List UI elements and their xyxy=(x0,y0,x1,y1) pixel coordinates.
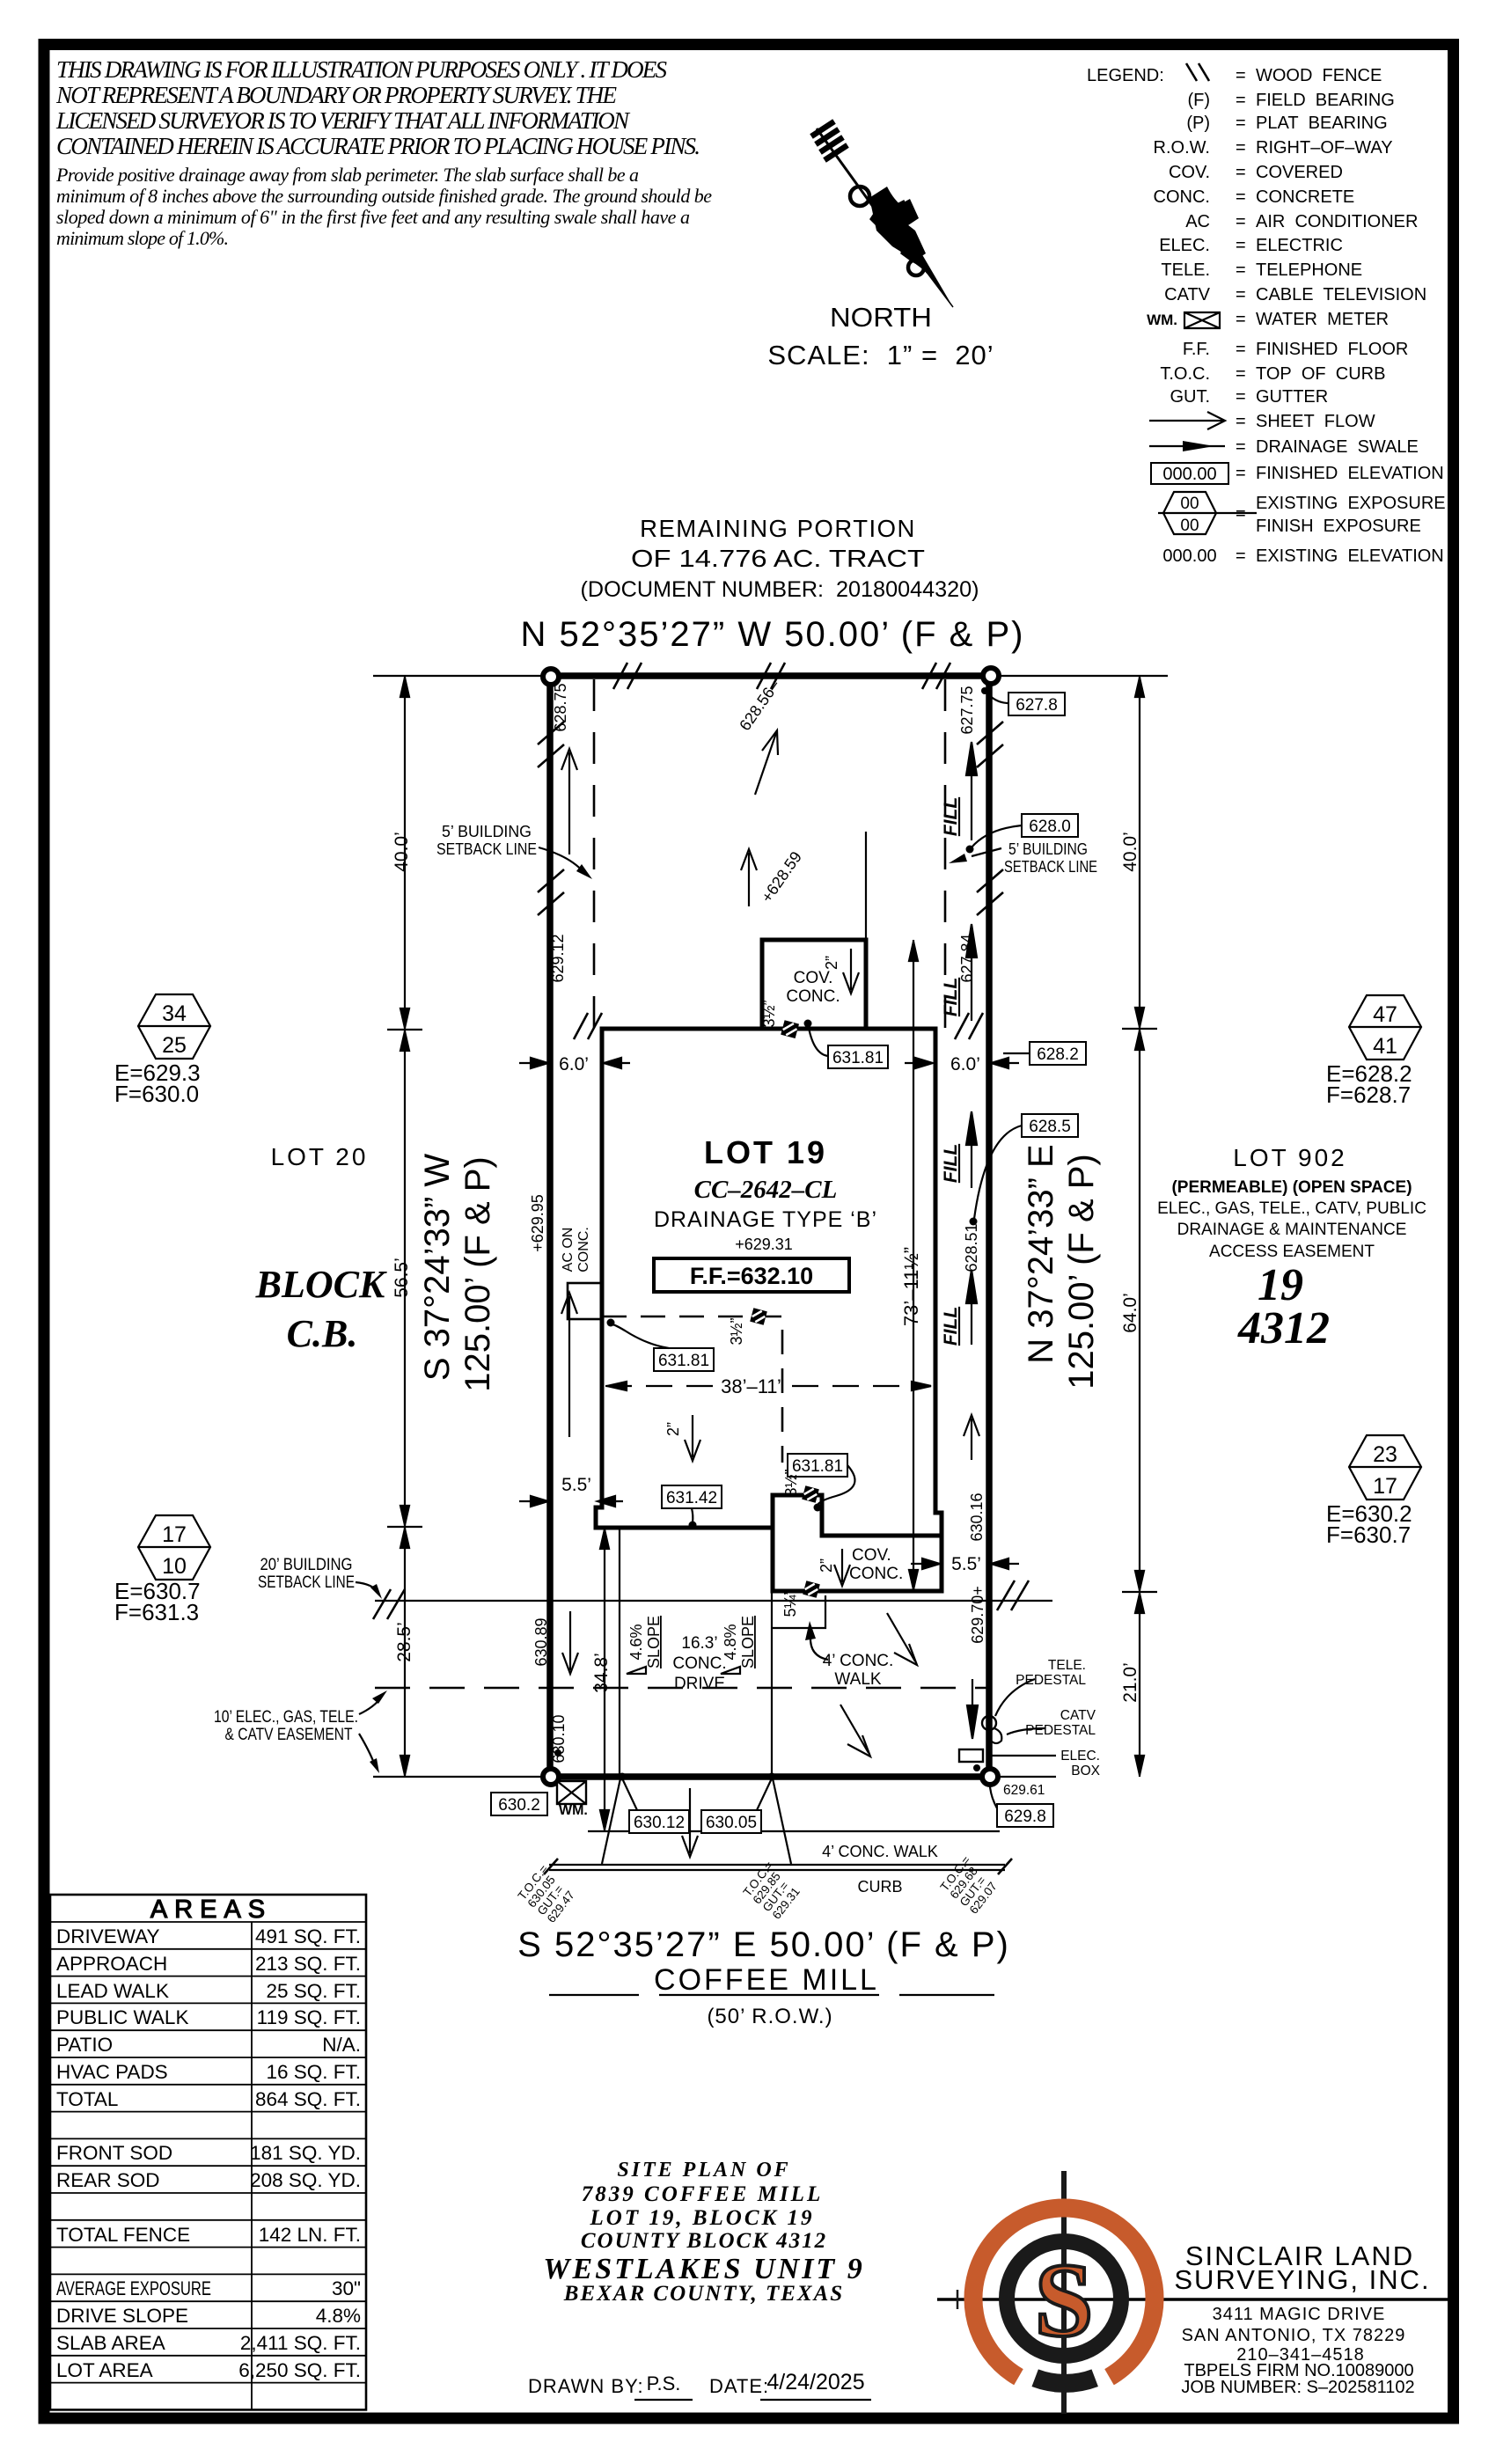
svg-text:R.O.W.: R.O.W. xyxy=(1154,138,1210,158)
svg-text:628.2: 628.2 xyxy=(1037,1045,1079,1064)
svg-text:LOT 19, BLOCK 19: LOT 19, BLOCK 19 xyxy=(590,2206,815,2230)
svg-text:THIS DRAWING IS FOR ILLUSTRATI: THIS DRAWING IS FOR ILLUSTRATION PURPOSE… xyxy=(56,56,668,83)
svg-text:=: = xyxy=(1236,546,1246,566)
svg-text:WM.: WM. xyxy=(559,1803,588,1818)
svg-text:208 SQ. YD.: 208 SQ. YD. xyxy=(250,2169,361,2191)
svg-text:EXISTING EXPOSURE: EXISTING EXPOSURE xyxy=(1256,494,1446,513)
svg-text:5’ BUILDING: 5’ BUILDING xyxy=(442,823,532,840)
svg-text:DRIVE SLOPE: DRIVE SLOPE xyxy=(56,2305,188,2327)
svg-text:DRAWN BY:: DRAWN BY: xyxy=(528,2375,644,2397)
svg-text:JOB NUMBER: S–202581102: JOB NUMBER: S–202581102 xyxy=(1181,2378,1414,2397)
svg-text:629.70+: 629.70+ xyxy=(969,1586,986,1644)
svg-text:minimum slope of 1.0%.: minimum slope of 1.0%. xyxy=(56,227,229,249)
svg-text:PEDESTAL: PEDESTAL xyxy=(1016,1673,1086,1688)
svg-text:PLAT BEARING: PLAT BEARING xyxy=(1256,114,1388,133)
svg-text:FILL: FILL xyxy=(941,797,961,836)
svg-text:TELE.: TELE. xyxy=(1048,1658,1086,1673)
svg-text:SETBACK LINE: SETBACK LINE xyxy=(436,840,537,858)
svg-text:630.16: 630.16 xyxy=(968,1492,986,1541)
svg-text:WALK: WALK xyxy=(834,1670,881,1689)
svg-text:00: 00 xyxy=(1180,495,1199,513)
svg-text:4/24/2025: 4/24/2025 xyxy=(766,2370,864,2394)
svg-text:628.75: 628.75 xyxy=(552,683,569,731)
svg-text:SETBACK LINE: SETBACK LINE xyxy=(258,1573,355,1592)
svg-text:(50’ R.O.W.): (50’ R.O.W.) xyxy=(707,2005,832,2028)
svg-text:=: = xyxy=(1236,163,1246,182)
svg-text:SLOPE: SLOPE xyxy=(645,1616,663,1668)
svg-text:CONC.: CONC. xyxy=(672,1654,726,1673)
svg-text:SETBACK LINE: SETBACK LINE xyxy=(1004,858,1097,876)
svg-text:PUBLIC WALK: PUBLIC WALK xyxy=(56,2006,188,2028)
svg-text:PATIO: PATIO xyxy=(56,2034,113,2056)
svg-text:5.5’: 5.5’ xyxy=(951,1554,981,1574)
svg-text:=: = xyxy=(1236,260,1246,280)
svg-text:BEXAR COUNTY, TEXAS: BEXAR COUNTY, TEXAS xyxy=(563,2282,844,2306)
svg-text:APPROACH: APPROACH xyxy=(56,1953,167,1975)
svg-text:6,250 SQ. FT.: 6,250 SQ. FT. xyxy=(238,2359,361,2381)
svg-text:LOT 20: LOT 20 xyxy=(271,1143,369,1170)
svg-text:10: 10 xyxy=(162,1554,187,1579)
svg-text:=: = xyxy=(1236,285,1246,304)
svg-text:73’–11½”: 73’–11½” xyxy=(900,1247,922,1326)
svg-text:34: 34 xyxy=(162,1001,187,1026)
svg-text:=: = xyxy=(1236,138,1246,158)
svg-text:16 SQ. FT.: 16 SQ. FT. xyxy=(266,2061,361,2083)
svg-text:SHEET FLOW: SHEET FLOW xyxy=(1256,412,1375,431)
svg-text:628.5: 628.5 xyxy=(1029,1118,1071,1136)
svg-text:628.51: 628.51 xyxy=(963,1223,980,1272)
svg-text:CC–2642–CL: CC–2642–CL xyxy=(694,1176,838,1204)
svg-text:2”: 2” xyxy=(823,956,840,970)
svg-text:631.81: 631.81 xyxy=(832,1049,884,1067)
svg-text:627.75: 627.75 xyxy=(958,686,976,734)
svg-text:5.5’: 5.5’ xyxy=(561,1475,591,1495)
svg-text:T.O.C.: T.O.C. xyxy=(1160,364,1210,384)
svg-text:629.8: 629.8 xyxy=(1004,1808,1046,1826)
svg-text:28.5’: 28.5’ xyxy=(394,1622,414,1662)
svg-text:BLOCK: BLOCK xyxy=(255,1263,387,1306)
svg-text:S 52°35’27” E 50.00’ (F & P): S 52°35’27” E 50.00’ (F & P) xyxy=(517,1925,1010,1964)
svg-text:HVAC PADS: HVAC PADS xyxy=(56,2061,168,2083)
svg-text:FINISH EXPOSURE: FINISH EXPOSURE xyxy=(1256,517,1421,536)
svg-text:COUNTY BLOCK 4312: COUNTY BLOCK 4312 xyxy=(581,2229,827,2253)
svg-text:TOP OF CURB: TOP OF CURB xyxy=(1256,364,1385,384)
svg-text:ELEC.: ELEC. xyxy=(1060,1749,1100,1764)
svg-text:PEDESTAL: PEDESTAL xyxy=(1025,1723,1096,1738)
svg-text:AIR CONDITIONER: AIR CONDITIONER xyxy=(1256,212,1418,231)
svg-text:N/A.: N/A. xyxy=(322,2034,361,2056)
svg-text:38’–11”: 38’–11” xyxy=(721,1375,784,1397)
svg-text:125.00’ (F & P): 125.00’ (F & P) xyxy=(458,1156,497,1392)
svg-text:4’ CONC. WALK: 4’ CONC. WALK xyxy=(822,1843,938,1860)
svg-text:SLAB AREA: SLAB AREA xyxy=(56,2332,165,2354)
svg-text:P.S.: P.S. xyxy=(647,2372,681,2394)
svg-text:ELECTRIC: ELECTRIC xyxy=(1256,236,1343,255)
svg-text:DRIVEWAY: DRIVEWAY xyxy=(56,1925,160,1947)
svg-text:RIGHT–OF–WAY: RIGHT–OF–WAY xyxy=(1256,138,1393,158)
svg-text:41: 41 xyxy=(1373,1034,1397,1059)
svg-text:CATV: CATV xyxy=(1164,285,1211,304)
svg-text:AVERAGE EXPOSURE: AVERAGE EXPOSURE xyxy=(56,2277,211,2299)
svg-text:REAR SOD: REAR SOD xyxy=(56,2169,160,2191)
svg-text:(P): (P) xyxy=(1186,114,1210,133)
svg-text:3½”: 3½” xyxy=(728,1317,745,1345)
svg-text:5¼”: 5¼” xyxy=(781,1589,799,1617)
svg-text:COV.: COV. xyxy=(852,1546,891,1565)
svg-text:GUT.: GUT. xyxy=(1170,387,1210,407)
svg-text:F=630.7: F=630.7 xyxy=(1326,1522,1411,1548)
svg-text:CONC.: CONC. xyxy=(849,1565,903,1583)
svg-text:20’ BUILDING: 20’ BUILDING xyxy=(260,1556,353,1574)
svg-text:ELEC.: ELEC. xyxy=(1159,236,1210,255)
svg-text:AC ON: AC ON xyxy=(561,1228,576,1272)
svg-text:64.0’: 64.0’ xyxy=(1120,1293,1140,1333)
svg-text:+629.95: +629.95 xyxy=(529,1194,546,1252)
svg-text:2”: 2” xyxy=(664,1422,682,1436)
svg-text:F.F.=632.10: F.F.=632.10 xyxy=(690,1263,813,1289)
svg-text:SCALE: 1” = 20’: SCALE: 1” = 20’ xyxy=(767,340,994,370)
svg-text:630.05: 630.05 xyxy=(706,1814,757,1832)
svg-text:DRIVE: DRIVE xyxy=(674,1675,725,1693)
svg-text:629.12: 629.12 xyxy=(549,934,567,982)
svg-text:16.3’: 16.3’ xyxy=(681,1634,717,1653)
svg-text:4’ CONC.: 4’ CONC. xyxy=(823,1652,894,1670)
svg-text:FINISHED ELEVATION: FINISHED ELEVATION xyxy=(1256,464,1444,483)
svg-text:CONC.: CONC. xyxy=(576,1227,591,1272)
svg-text:47: 47 xyxy=(1373,1002,1397,1027)
svg-text:25: 25 xyxy=(162,1033,187,1058)
svg-text:119 SQ. FT.: 119 SQ. FT. xyxy=(257,2006,361,2028)
svg-text:CONC.: CONC. xyxy=(1154,187,1210,207)
svg-text:BOX: BOX xyxy=(1071,1764,1100,1778)
svg-text:630.89: 630.89 xyxy=(532,1617,550,1666)
svg-text:34.8’: 34.8’ xyxy=(591,1653,612,1693)
svg-text:=: = xyxy=(1236,412,1246,431)
svg-text:629.61: 629.61 xyxy=(1003,1783,1045,1798)
svg-text:SITE PLAN OF: SITE PLAN OF xyxy=(617,2159,790,2182)
svg-text:CABLE TELEVISION: CABLE TELEVISION xyxy=(1256,285,1426,304)
svg-text:LICENSED SURVEYOR IS TO VERIFY: LICENSED SURVEYOR IS TO VERIFY THAT ALL … xyxy=(55,107,631,134)
svg-text:(DOCUMENT NUMBER: 20180044320: (DOCUMENT NUMBER: 20180044320) xyxy=(581,577,979,602)
svg-text:=: = xyxy=(1236,437,1246,457)
svg-text:EXISTING ELEVATION: EXISTING ELEVATION xyxy=(1256,546,1444,566)
svg-text:DRAINAGE TYPE ‘B’: DRAINAGE TYPE ‘B’ xyxy=(654,1207,877,1232)
svg-text:N 37°24’33” E: N 37°24’33” E xyxy=(1022,1144,1060,1363)
svg-text:=: = xyxy=(1236,91,1246,110)
svg-text:142 LN. FT.: 142 LN. FT. xyxy=(259,2224,361,2246)
svg-text:F=631.3: F=631.3 xyxy=(114,1599,199,1625)
svg-text:SAN ANTONIO, TX 78229: SAN ANTONIO, TX 78229 xyxy=(1182,2326,1406,2345)
svg-text:CONCRETE: CONCRETE xyxy=(1256,187,1354,207)
svg-text:00: 00 xyxy=(1180,517,1199,535)
svg-text:COV.: COV. xyxy=(1169,163,1210,182)
svg-text:sloped down a minimum of 6" in: sloped down a minimum of 6" in the first… xyxy=(56,206,690,228)
svg-text:TOTAL FENCE: TOTAL FENCE xyxy=(56,2224,190,2246)
svg-text:40.0’: 40.0’ xyxy=(392,832,412,872)
svg-text:FILL: FILL xyxy=(941,1307,961,1346)
svg-text:=: = xyxy=(1236,114,1246,133)
svg-text:17: 17 xyxy=(162,1522,187,1547)
svg-text:=: = xyxy=(1236,387,1246,407)
svg-text:COV.: COV. xyxy=(794,969,833,987)
svg-text:DRAINAGE SWALE: DRAINAGE SWALE xyxy=(1256,437,1419,457)
svg-text:30": 30" xyxy=(332,2277,361,2299)
svg-text:AC: AC xyxy=(1185,212,1210,231)
svg-text:10’ ELEC., GAS, TELE.: 10’ ELEC., GAS, TELE. xyxy=(214,1708,358,1727)
svg-text:WATER METER: WATER METER xyxy=(1256,310,1389,329)
svg-text:TOTAL: TOTAL xyxy=(56,2088,118,2110)
svg-text:(PERMEABLE) (OPEN SPACE): (PERMEABLE) (OPEN SPACE) xyxy=(1171,1178,1412,1197)
svg-text:FIELD BEARING: FIELD BEARING xyxy=(1256,91,1395,110)
svg-text:864 SQ. FT.: 864 SQ. FT. xyxy=(255,2088,361,2110)
svg-text:LEAD WALK: LEAD WALK xyxy=(56,1980,169,2002)
svg-text:3½”: 3½” xyxy=(760,1000,778,1027)
svg-text:S: S xyxy=(1035,2241,1094,2358)
svg-text:AREAS: AREAS xyxy=(150,1896,272,1924)
svg-text:631.81: 631.81 xyxy=(658,1352,709,1370)
svg-text:OF 14.776 AC. TRACT: OF 14.776 AC. TRACT xyxy=(631,545,925,572)
svg-text:125.00’ (F & P): 125.00’ (F & P) xyxy=(1062,1154,1101,1390)
svg-text:WOOD FENCE: WOOD FENCE xyxy=(1256,66,1382,85)
svg-text:NORTH: NORTH xyxy=(830,302,932,333)
svg-text:C.B.: C.B. xyxy=(287,1312,358,1355)
svg-text:3411 MAGIC DRIVE: 3411 MAGIC DRIVE xyxy=(1213,2305,1386,2324)
svg-text:minimum of 8 inches above the: minimum of 8 inches above the surroundin… xyxy=(56,185,712,207)
svg-text:F=628.7: F=628.7 xyxy=(1326,1082,1411,1108)
svg-text:=: = xyxy=(1236,212,1246,231)
svg-text:7839 COFFEE MILL: 7839 COFFEE MILL xyxy=(582,2182,823,2206)
svg-text:WM.: WM. xyxy=(1147,312,1177,328)
svg-text:630.12: 630.12 xyxy=(634,1814,685,1832)
svg-text:S 37°24’33” W: S 37°24’33” W xyxy=(418,1154,457,1382)
svg-text:2,411 SQ. FT.: 2,411 SQ. FT. xyxy=(240,2332,361,2354)
svg-text:=: = xyxy=(1236,236,1246,255)
svg-text:23: 23 xyxy=(1373,1442,1397,1467)
svg-text:LOT 19: LOT 19 xyxy=(704,1134,827,1170)
svg-text:6.0’: 6.0’ xyxy=(950,1054,980,1074)
svg-text:40.0’: 40.0’ xyxy=(1120,832,1140,872)
svg-text:=: = xyxy=(1236,310,1246,329)
svg-text:000.00: 000.00 xyxy=(1162,465,1216,484)
svg-text:LEGEND:: LEGEND: xyxy=(1087,66,1164,85)
svg-text:Provide positive drainage away: Provide positive drainage away from slab… xyxy=(55,164,639,186)
svg-text:=: = xyxy=(1236,464,1246,483)
svg-text:SURVEYING, INC.: SURVEYING, INC. xyxy=(1174,2264,1430,2295)
svg-text:REMAINING PORTION: REMAINING PORTION xyxy=(640,515,916,542)
svg-text:LOT 902: LOT 902 xyxy=(1233,1144,1346,1171)
svg-text:CURB: CURB xyxy=(857,1878,902,1896)
svg-text:F.F.: F.F. xyxy=(1183,340,1210,359)
svg-text:LOT AREA: LOT AREA xyxy=(56,2359,153,2381)
svg-text:17: 17 xyxy=(1373,1474,1397,1499)
svg-text:F=630.0: F=630.0 xyxy=(114,1081,199,1107)
svg-text:& CATV EASEMENT: & CATV EASEMENT xyxy=(225,1726,353,1744)
svg-text:3½”: 3½” xyxy=(782,1469,800,1496)
svg-text:FINISHED FLOOR: FINISHED FLOOR xyxy=(1256,340,1408,359)
svg-text:NOT REPRESENT A BOUNDARY OR PR: NOT REPRESENT A BOUNDARY OR PROPERTY SUR… xyxy=(55,82,618,108)
svg-text:=: = xyxy=(1236,187,1246,207)
svg-text:FRONT SOD: FRONT SOD xyxy=(56,2142,172,2164)
svg-text:491 SQ. FT.: 491 SQ. FT. xyxy=(255,1925,361,1947)
svg-text:DRAINAGE & MAINTENANCE: DRAINAGE & MAINTENANCE xyxy=(1177,1221,1407,1239)
svg-text:5’ BUILDING: 5’ BUILDING xyxy=(1008,840,1088,858)
svg-text:=: = xyxy=(1236,340,1246,359)
svg-text:627.8: 627.8 xyxy=(1016,696,1058,715)
svg-text:213 SQ. FT.: 213 SQ. FT. xyxy=(255,1953,361,1975)
svg-text:COVERED: COVERED xyxy=(1256,163,1343,182)
svg-text:21.0’: 21.0’ xyxy=(1120,1662,1140,1703)
svg-text:000.00: 000.00 xyxy=(1162,546,1216,566)
svg-text:2”: 2” xyxy=(818,1558,835,1573)
svg-text:(F): (F) xyxy=(1187,91,1210,110)
svg-text:ACCESS EASEMENT: ACCESS EASEMENT xyxy=(1209,1243,1375,1261)
svg-text:CONC.: CONC. xyxy=(786,987,840,1006)
svg-text:25 SQ. FT.: 25 SQ. FT. xyxy=(266,1980,361,2002)
svg-text:CONTAINED HEREIN IS ACCURATE P: CONTAINED HEREIN IS ACCURATE PRIOR TO PL… xyxy=(56,133,700,159)
svg-text:4312: 4312 xyxy=(1237,1303,1330,1353)
svg-text:4.6%: 4.6% xyxy=(627,1624,645,1660)
svg-text:DATE:: DATE: xyxy=(709,2375,769,2397)
svg-text:628.0: 628.0 xyxy=(1029,818,1071,836)
svg-text:COFFEE MILL: COFFEE MILL xyxy=(654,1963,879,1997)
svg-text:+629.31: +629.31 xyxy=(735,1236,793,1253)
svg-text:6.0’: 6.0’ xyxy=(559,1054,589,1074)
svg-text:FILL: FILL xyxy=(941,978,961,1016)
svg-text:CATV: CATV xyxy=(1060,1708,1096,1723)
svg-text:=: = xyxy=(1236,66,1246,85)
svg-text:N 52°35’27” W 50.00’ (F & P): N 52°35’27” W 50.00’ (F & P) xyxy=(521,615,1025,654)
svg-text:TELEPHONE: TELEPHONE xyxy=(1256,260,1362,280)
svg-text:631.42: 631.42 xyxy=(666,1489,717,1507)
svg-text:TELE.: TELE. xyxy=(1161,260,1210,280)
svg-text:56.5’: 56.5’ xyxy=(392,1258,412,1298)
svg-text:ELEC., GAS, TELE., CATV, PUBLI: ELEC., GAS, TELE., CATV, PUBLIC xyxy=(1157,1199,1426,1218)
svg-text:FILL: FILL xyxy=(941,1144,961,1183)
svg-text:GUTTER: GUTTER xyxy=(1256,387,1328,407)
svg-text:=: = xyxy=(1236,364,1246,384)
svg-text:630.2: 630.2 xyxy=(498,1796,540,1815)
svg-text:WESTLAKES UNIT 9: WESTLAKES UNIT 9 xyxy=(543,2253,864,2285)
svg-text:181 SQ. YD.: 181 SQ. YD. xyxy=(250,2142,361,2164)
svg-text:SLOPE: SLOPE xyxy=(739,1616,757,1668)
svg-text:4.8%: 4.8% xyxy=(316,2305,361,2327)
